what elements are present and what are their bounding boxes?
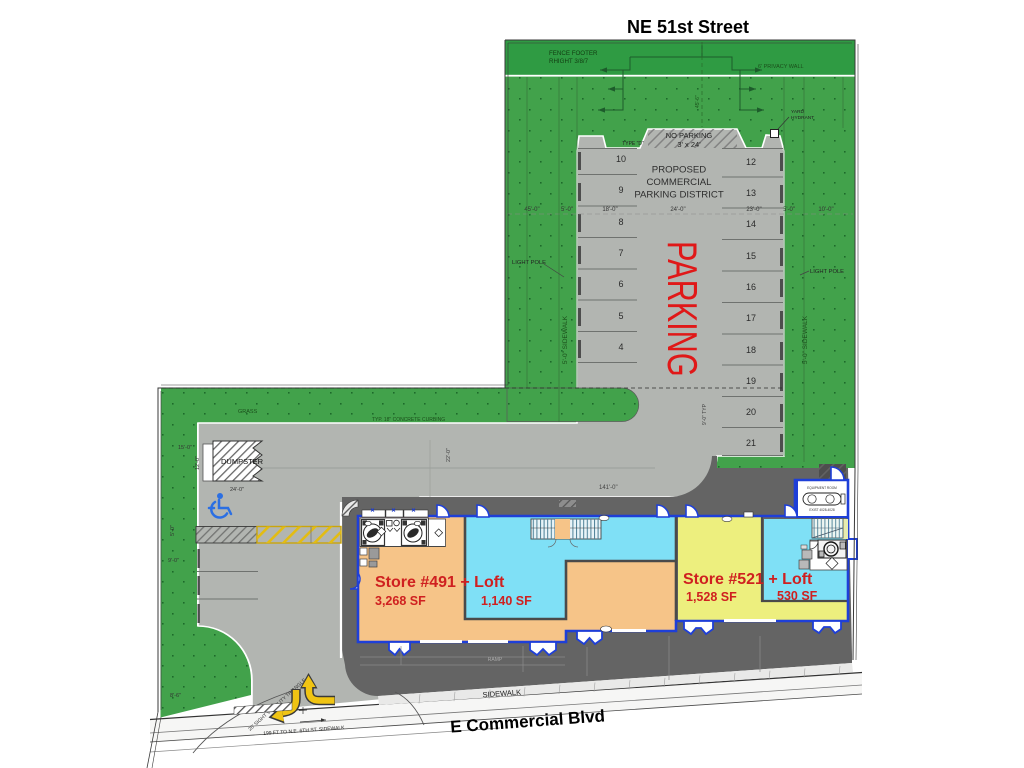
svg-text:PARKING: PARKING	[659, 241, 706, 377]
svg-text:15: 15	[746, 251, 756, 261]
svg-text:15'-0": 15'-0"	[178, 445, 192, 451]
svg-text:LIGHT POLE: LIGHT POLE	[512, 260, 546, 266]
svg-text:45'-6": 45'-6"	[695, 95, 701, 108]
svg-text:6' PRIVACY WALL: 6' PRIVACY WALL	[758, 64, 804, 70]
svg-text:EQUIPMENT ROOM: EQUIPMENT ROOM	[807, 486, 837, 490]
svg-text:TYP. 18" CONCRETE CURBING: TYP. 18" CONCRETE CURBING	[372, 417, 445, 423]
svg-text:20: 20	[746, 407, 756, 417]
svg-text:24'-0": 24'-0"	[230, 487, 244, 493]
svg-text:5'-0": 5'-0"	[561, 207, 573, 213]
svg-text:5: 5	[618, 311, 623, 321]
svg-text:23'-0": 23'-0"	[746, 207, 761, 213]
svg-text:18'-0": 18'-0"	[602, 207, 617, 213]
svg-text:3' x 24': 3' x 24'	[677, 140, 701, 149]
svg-text:NO PARKING: NO PARKING	[666, 131, 713, 140]
svg-text:COMMERCIAL: COMMERCIAL	[646, 177, 712, 188]
svg-text:Store #491 + Loft: Store #491 + Loft	[375, 574, 505, 591]
svg-text:HYDRANT: HYDRANT	[791, 115, 814, 121]
svg-text:5'-0": 5'-0"	[783, 207, 795, 213]
svg-text:EXIST 4028-4028: EXIST 4028-4028	[809, 508, 835, 512]
svg-text:RAMP: RAMP	[488, 657, 503, 663]
svg-text:PROPOSED: PROPOSED	[652, 165, 706, 176]
svg-text:9'-0" TYP: 9'-0" TYP	[702, 403, 708, 425]
svg-text:5'-0": 5'-0"	[170, 525, 176, 536]
svg-text:5'-0" SIDEWALK: 5'-0" SIDEWALK	[802, 315, 809, 364]
svg-text:3,268 SF: 3,268 SF	[375, 594, 426, 608]
svg-text:14: 14	[746, 219, 756, 229]
svg-text:Store #521 + Loft: Store #521 + Loft	[683, 571, 813, 588]
svg-text:21: 21	[746, 438, 756, 448]
svg-text:9: 9	[618, 185, 623, 195]
svg-text:1,140 SF: 1,140 SF	[481, 594, 532, 608]
svg-text:7: 7	[618, 248, 623, 258]
svg-text:YARD: YARD	[791, 109, 805, 115]
svg-text:FENCE FOOTER: FENCE FOOTER	[549, 50, 598, 57]
svg-text:4: 4	[618, 342, 623, 352]
svg-text:10'-0": 10'-0"	[818, 207, 833, 213]
svg-text:13: 13	[746, 188, 756, 198]
svg-text:LIGHT POLE: LIGHT POLE	[810, 269, 844, 275]
svg-text:6: 6	[618, 279, 623, 289]
svg-text:17: 17	[746, 313, 756, 323]
svg-text:DUMPSTER: DUMPSTER	[221, 457, 264, 466]
svg-text:TYPE "D": TYPE "D"	[622, 141, 644, 147]
svg-text:45'-0": 45'-0"	[524, 207, 539, 213]
svg-text:GRASS: GRASS	[238, 409, 258, 415]
svg-text:9'-0": 9'-0"	[168, 558, 179, 564]
svg-text:24'-0": 24'-0"	[670, 207, 685, 213]
svg-text:22'-0": 22'-0"	[446, 448, 452, 462]
svg-text:12'-0": 12'-0"	[195, 456, 201, 470]
svg-text:16: 16	[746, 282, 756, 292]
svg-text:530 SF: 530 SF	[777, 589, 818, 603]
svg-text:12: 12	[746, 157, 756, 167]
svg-text:18: 18	[746, 345, 756, 355]
svg-text:19: 19	[746, 376, 756, 386]
svg-text:1,528 SF: 1,528 SF	[686, 590, 737, 604]
svg-text:141'-0": 141'-0"	[599, 485, 618, 491]
svg-text:8'-6": 8'-6"	[170, 693, 181, 699]
svg-text:PARKING DISTRICT: PARKING DISTRICT	[634, 190, 724, 201]
svg-text:NE 51st Street: NE 51st Street	[627, 17, 749, 37]
svg-text:RHIGHT 3/8/7: RHIGHT 3/8/7	[549, 58, 589, 65]
svg-text:10: 10	[616, 154, 626, 164]
svg-text:8: 8	[618, 217, 623, 227]
svg-text:5'-0" SIDEWALK: 5'-0" SIDEWALK	[562, 315, 569, 364]
